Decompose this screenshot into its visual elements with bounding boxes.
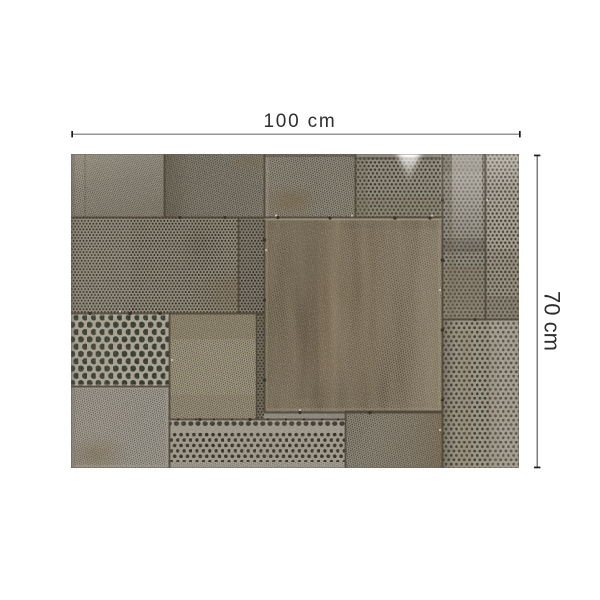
svg-text:70 cm: 70 cm	[540, 291, 565, 351]
svg-text:100 cm: 100 cm	[263, 111, 336, 132]
